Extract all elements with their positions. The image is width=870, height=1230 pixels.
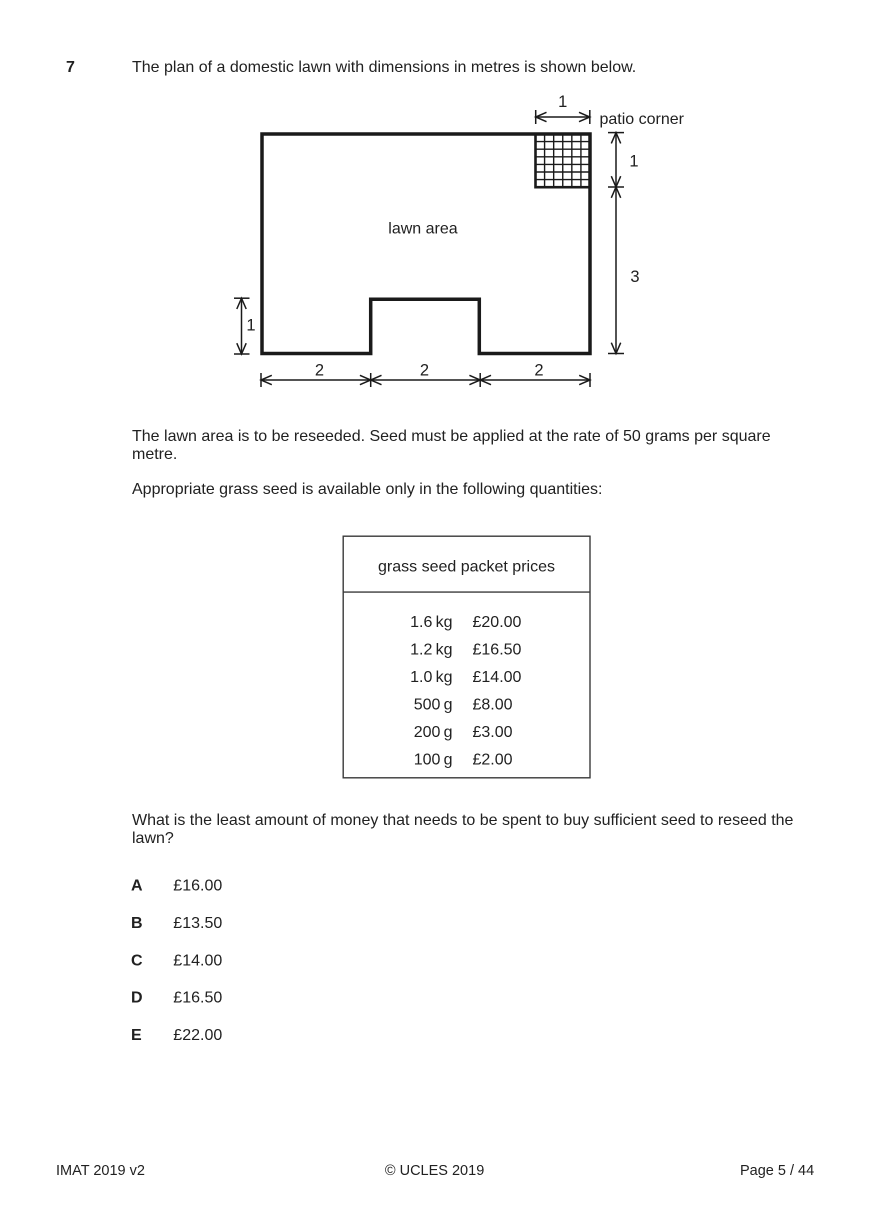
svg-text:E: E xyxy=(131,1027,142,1044)
svg-text:£13.50: £13.50 xyxy=(173,915,222,932)
svg-text:7: 7 xyxy=(66,59,75,76)
svg-text:2: 2 xyxy=(534,362,543,380)
svg-text:£14.00: £14.00 xyxy=(473,669,522,686)
svg-text:The plan of a domestic lawn wi: The plan of a domestic lawn with dimensi… xyxy=(132,59,636,76)
svg-text:patio corner: patio corner xyxy=(600,111,685,128)
svg-text:1.0 kg: 1.0 kg xyxy=(410,669,452,686)
svg-text:2: 2 xyxy=(420,362,429,380)
svg-text:D: D xyxy=(131,990,143,1007)
svg-text:1: 1 xyxy=(246,317,255,335)
svg-text:100 g: 100 g xyxy=(414,752,453,769)
svg-text:metre.: metre. xyxy=(132,446,177,463)
svg-text:£16.50: £16.50 xyxy=(173,990,222,1007)
svg-text:£22.00: £22.00 xyxy=(173,1027,222,1044)
svg-text:lawn?: lawn? xyxy=(132,830,174,847)
svg-text:500 g: 500 g xyxy=(414,697,453,714)
svg-text:B: B xyxy=(131,915,143,932)
svg-text:2: 2 xyxy=(315,362,324,380)
svg-text:IMAT 2019 v2: IMAT 2019 v2 xyxy=(56,1163,145,1179)
svg-text:1.6 kg: 1.6 kg xyxy=(410,614,452,631)
svg-text:Appropriate grass seed is avai: Appropriate grass seed is available only… xyxy=(132,481,603,498)
svg-text:lawn area: lawn area xyxy=(388,221,457,238)
svg-text:1.2 kg: 1.2 kg xyxy=(410,642,452,659)
svg-text:© UCLES 2019: © UCLES 2019 xyxy=(385,1163,484,1179)
svg-text:£16.50: £16.50 xyxy=(473,642,522,659)
svg-text:1: 1 xyxy=(629,152,638,170)
svg-text:A: A xyxy=(131,878,143,895)
svg-text:200 g: 200 g xyxy=(414,724,453,741)
svg-text:What is the least amount of mo: What is the least amount of money that n… xyxy=(132,812,794,829)
svg-text:Page 5 / 44: Page 5 / 44 xyxy=(740,1163,814,1179)
svg-text:1: 1 xyxy=(558,93,567,111)
svg-text:£14.00: £14.00 xyxy=(173,952,222,969)
svg-text:grass seed packet prices: grass seed packet prices xyxy=(378,558,555,575)
svg-text:The lawn area is to be reseede: The lawn area is to be reseeded. Seed mu… xyxy=(132,428,771,445)
svg-text:3: 3 xyxy=(630,268,639,286)
svg-text:£3.00: £3.00 xyxy=(473,724,513,741)
svg-text:£2.00: £2.00 xyxy=(473,752,513,769)
svg-text:£8.00: £8.00 xyxy=(473,697,513,714)
svg-text:C: C xyxy=(131,952,143,969)
svg-text:£20.00: £20.00 xyxy=(473,614,522,631)
svg-text:£16.00: £16.00 xyxy=(173,878,222,895)
